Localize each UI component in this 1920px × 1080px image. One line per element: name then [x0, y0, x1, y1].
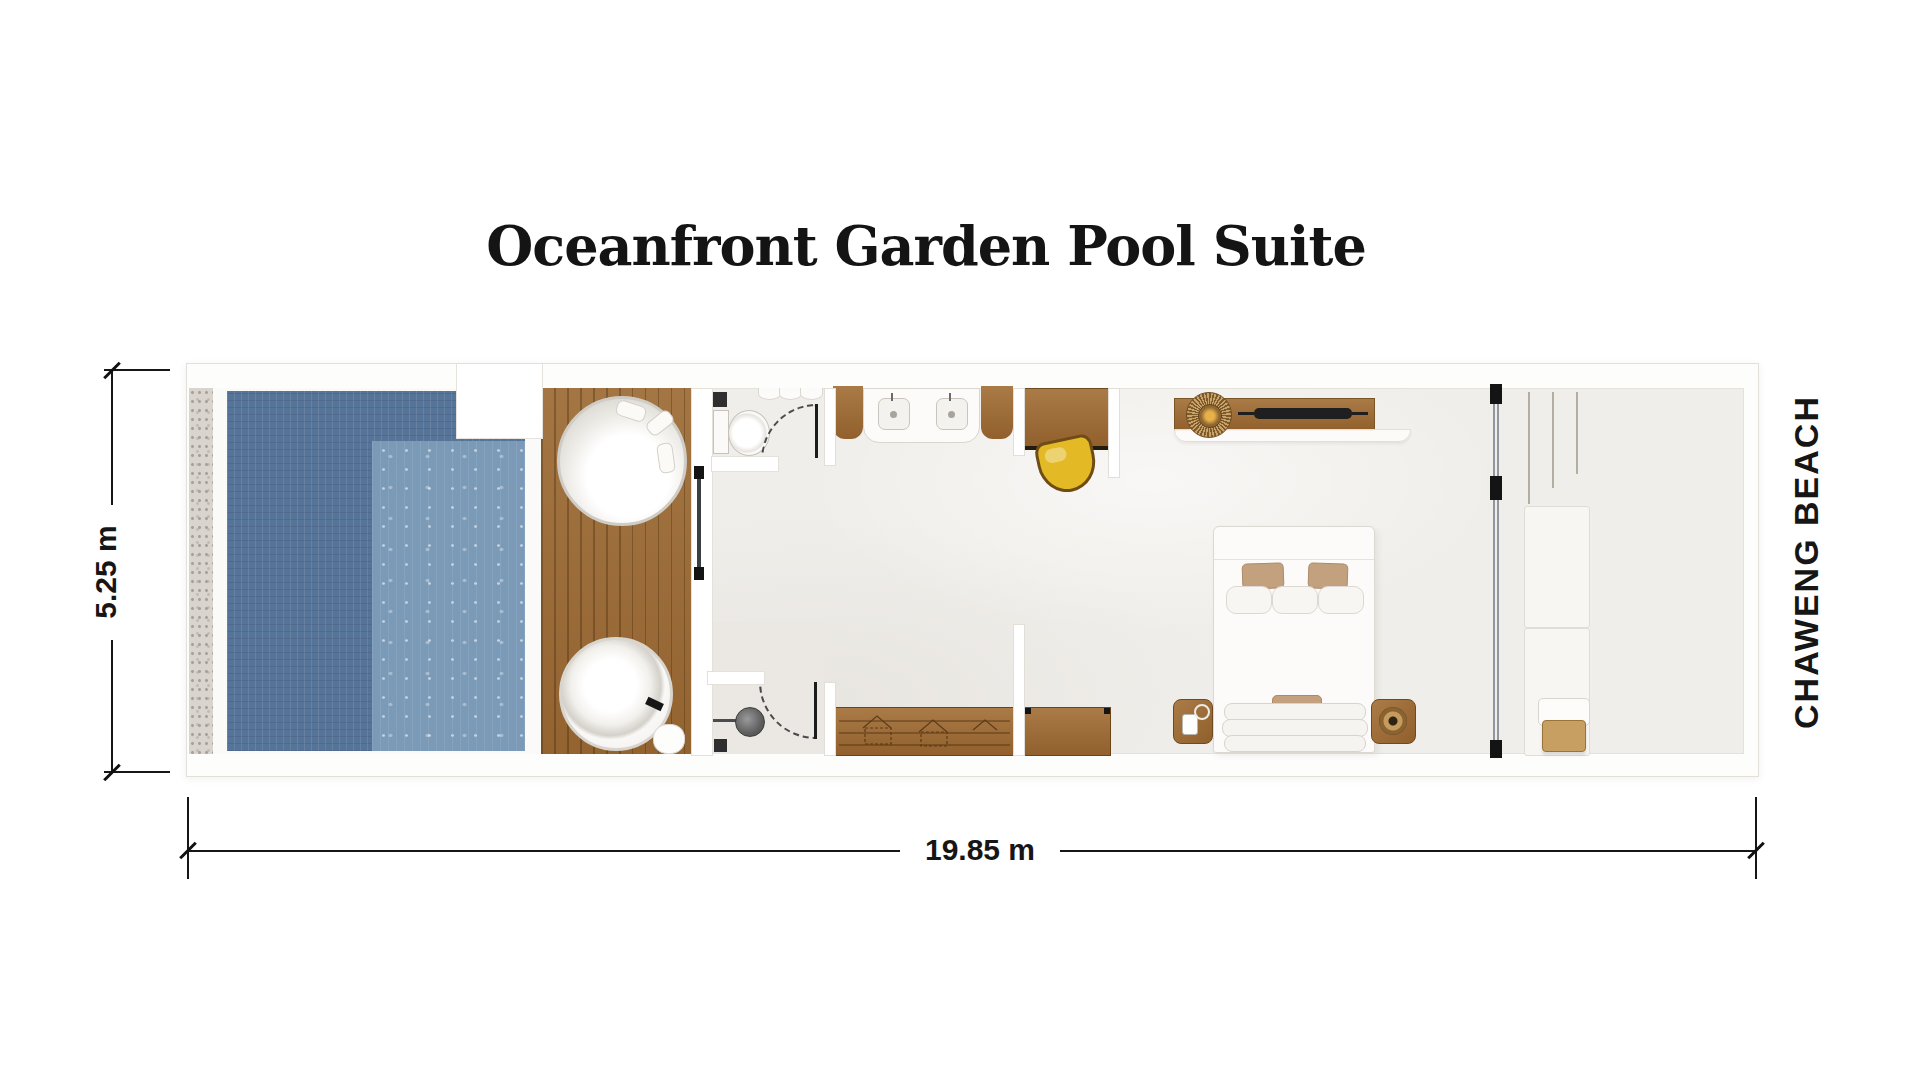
hanging-rail-line: [1552, 392, 1554, 488]
stool-highlight: [1043, 446, 1067, 464]
pillow: [1272, 586, 1318, 614]
shower-door-leaf: [814, 682, 817, 739]
wall-pier: [1013, 624, 1025, 756]
tub-faucet: [645, 697, 664, 711]
duvet-seam: [1214, 559, 1374, 560]
wc-partition-wall: [711, 456, 779, 472]
hanging-rail-line: [1528, 392, 1530, 504]
wall-pier: [1108, 388, 1120, 478]
page-title: Oceanfront Garden Pool Suite: [486, 214, 1366, 278]
tv-bracket: [1352, 412, 1368, 415]
pool-sun-shelf: [372, 441, 525, 751]
corner-fitting: [1104, 708, 1110, 714]
nightstand-left: [1173, 699, 1213, 744]
depth-dimension-line: [111, 371, 113, 505]
sink-right: [936, 398, 968, 430]
vanity-side-cabinet: [833, 386, 863, 439]
plunge-pool: [227, 391, 525, 751]
table-lamp: [1379, 707, 1407, 735]
sunburst-center: [1198, 404, 1222, 428]
pool-step-block: [456, 364, 543, 439]
wall-pier: [824, 388, 836, 466]
extension-line: [187, 797, 189, 879]
king-bed: [1213, 526, 1375, 753]
wardrobe-shelf-upper: [1524, 506, 1590, 628]
width-dimension-line: [188, 850, 900, 852]
floor-plan-page: Oceanfront Garden Pool Suite: [0, 0, 1920, 1080]
partition-fitting: [1490, 384, 1502, 404]
drain: [890, 411, 897, 418]
corner-fitting: [1025, 708, 1031, 714]
television: [1254, 408, 1352, 419]
toilet-tank: [713, 410, 729, 454]
floor-drain: [714, 739, 727, 752]
deck-glass-door: [697, 472, 701, 574]
luggage-chest: [1024, 707, 1111, 756]
partition-handle: [1490, 476, 1502, 500]
depth-dimension-label: 5.25 m: [88, 502, 124, 642]
door-cap-bottom: [694, 567, 704, 580]
bath-mat: [653, 724, 685, 754]
phone-cord: [1194, 704, 1210, 720]
daybed-cushion: [614, 399, 647, 423]
partition-fitting: [1490, 740, 1502, 758]
round-daybed: [557, 396, 687, 526]
beach-label: CHAWENG BEACH: [1784, 382, 1828, 742]
wc-scallop: [758, 388, 781, 400]
tv-bracket: [1238, 412, 1254, 415]
wall-pier: [1013, 388, 1025, 456]
wc-door-leaf: [815, 404, 818, 458]
daybed-cushion: [656, 442, 676, 474]
faucet: [949, 393, 951, 401]
door-cap-top: [694, 466, 704, 479]
bolster: [1224, 735, 1366, 752]
width-dimension-label: 19.85 m: [900, 833, 1060, 867]
wall-pier: [824, 682, 836, 756]
hanging-rail-line: [1576, 392, 1578, 474]
faucet: [891, 393, 893, 401]
pillow: [1226, 586, 1272, 614]
width-dimension-line: [1060, 850, 1756, 852]
dressing-cabinet: [834, 707, 1015, 756]
rain-shower-head: [735, 707, 765, 737]
pebble-border: [189, 388, 214, 754]
depth-dimension-line: [111, 640, 113, 773]
luggage-bench: [1542, 720, 1586, 752]
extension-line: [1755, 797, 1757, 879]
sink-left: [878, 398, 910, 430]
vanity-side-cabinet: [981, 386, 1013, 439]
shower-arm: [711, 719, 737, 722]
shower-partition-wall: [707, 671, 765, 685]
drain: [948, 411, 955, 418]
sunburst-mirror: [1186, 392, 1232, 438]
nightstand-right: [1371, 699, 1416, 744]
sliding-glass-partition: [1493, 386, 1499, 758]
dresser-detail: [835, 708, 1014, 755]
floor-plan: [186, 363, 1759, 777]
wc-scallop: [800, 388, 823, 400]
double-vanity: [863, 388, 980, 443]
cistern-panel: [713, 392, 727, 407]
wc-scallop: [779, 388, 802, 400]
pillow: [1318, 586, 1364, 614]
